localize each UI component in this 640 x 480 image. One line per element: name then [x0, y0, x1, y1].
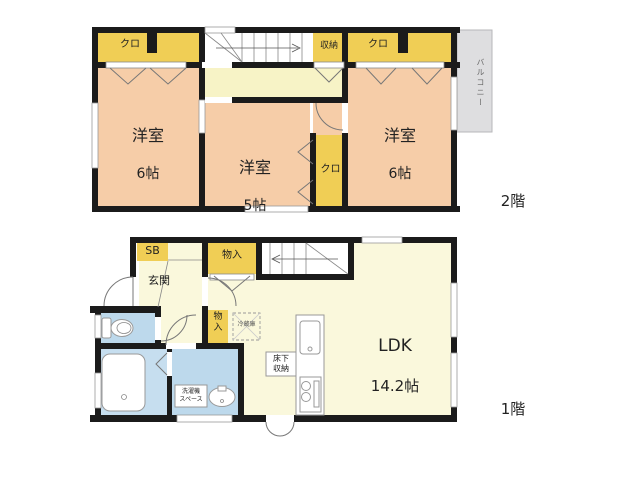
window	[205, 27, 235, 33]
door-opening	[202, 277, 208, 306]
window	[95, 373, 101, 408]
room-name: 洋室	[352, 126, 448, 146]
storage2f-label: 収納	[311, 41, 347, 52]
shoebox-label: SB	[137, 244, 168, 258]
room-size: 14.2帖	[340, 377, 450, 396]
window	[95, 315, 101, 338]
hall1f-floor	[161, 307, 202, 345]
entrance-door-arc	[104, 277, 133, 306]
closet-door-front	[356, 62, 444, 68]
door-opening	[342, 103, 348, 133]
floor-plan-graphics	[0, 0, 640, 480]
storage-top-label: 物入	[210, 250, 254, 263]
door-opening	[155, 317, 161, 340]
underfloor-label: 床下 収納	[267, 354, 295, 374]
wall	[130, 237, 457, 243]
room-name: 洋室	[209, 158, 301, 178]
closet-left-label: クロ	[102, 39, 158, 52]
stairs1f-area	[262, 243, 348, 274]
floor1-label: 1階	[488, 400, 538, 419]
window	[451, 283, 457, 337]
closet-mid-label: クロ	[314, 164, 347, 177]
fridge-label: 冷蔵庫	[233, 321, 260, 329]
toilet-icon	[102, 318, 133, 338]
room-size: 6帖	[352, 166, 448, 184]
room-right-label: 洋室 6帖	[352, 106, 448, 204]
balcony-label: バルコニー	[463, 46, 485, 120]
window	[177, 415, 232, 422]
wall	[256, 237, 262, 280]
closet-door-front	[314, 62, 344, 68]
room-size: 6帖	[100, 166, 196, 184]
wall	[238, 343, 244, 422]
window	[362, 237, 402, 243]
entrance-label: 玄関	[138, 274, 180, 288]
window	[92, 103, 98, 168]
window	[451, 353, 457, 407]
stair-opening	[202, 62, 232, 68]
floor-plan: クロ 収納 クロ バルコニー 洋室 6帖 洋室 5帖 洋室 6帖 クロ 2階 S…	[0, 0, 640, 480]
wall	[202, 243, 208, 277]
door-opening	[266, 415, 294, 422]
room-left-label: 洋室 6帖	[100, 106, 196, 204]
closet-right-label: クロ	[352, 39, 404, 52]
kitchen-counter-icon	[296, 315, 324, 415]
closet-door-front	[106, 62, 186, 68]
room-mid-label: 洋室 5帖	[209, 138, 301, 236]
room-name: LDK	[340, 336, 450, 357]
sliding-door	[199, 100, 205, 133]
floor2-label: 2階	[488, 192, 538, 211]
storage-side-label: 物 入	[208, 312, 228, 334]
door-opening	[205, 97, 232, 103]
door-opening	[166, 343, 196, 349]
ldk-exterior-door-arc	[266, 422, 294, 436]
laundry-label: 洗濯機 スペース	[176, 388, 206, 405]
wall	[92, 27, 460, 33]
stairs2f-area	[205, 33, 310, 62]
wall	[256, 274, 354, 280]
wall	[130, 237, 136, 277]
room-name: 洋室	[100, 126, 196, 146]
ldk-label: LDK 14.2帖	[340, 316, 450, 416]
room-size: 5帖	[209, 198, 301, 216]
bathtub-icon	[102, 354, 145, 411]
wall	[348, 237, 354, 280]
window	[451, 77, 457, 130]
door-opening	[167, 352, 172, 376]
